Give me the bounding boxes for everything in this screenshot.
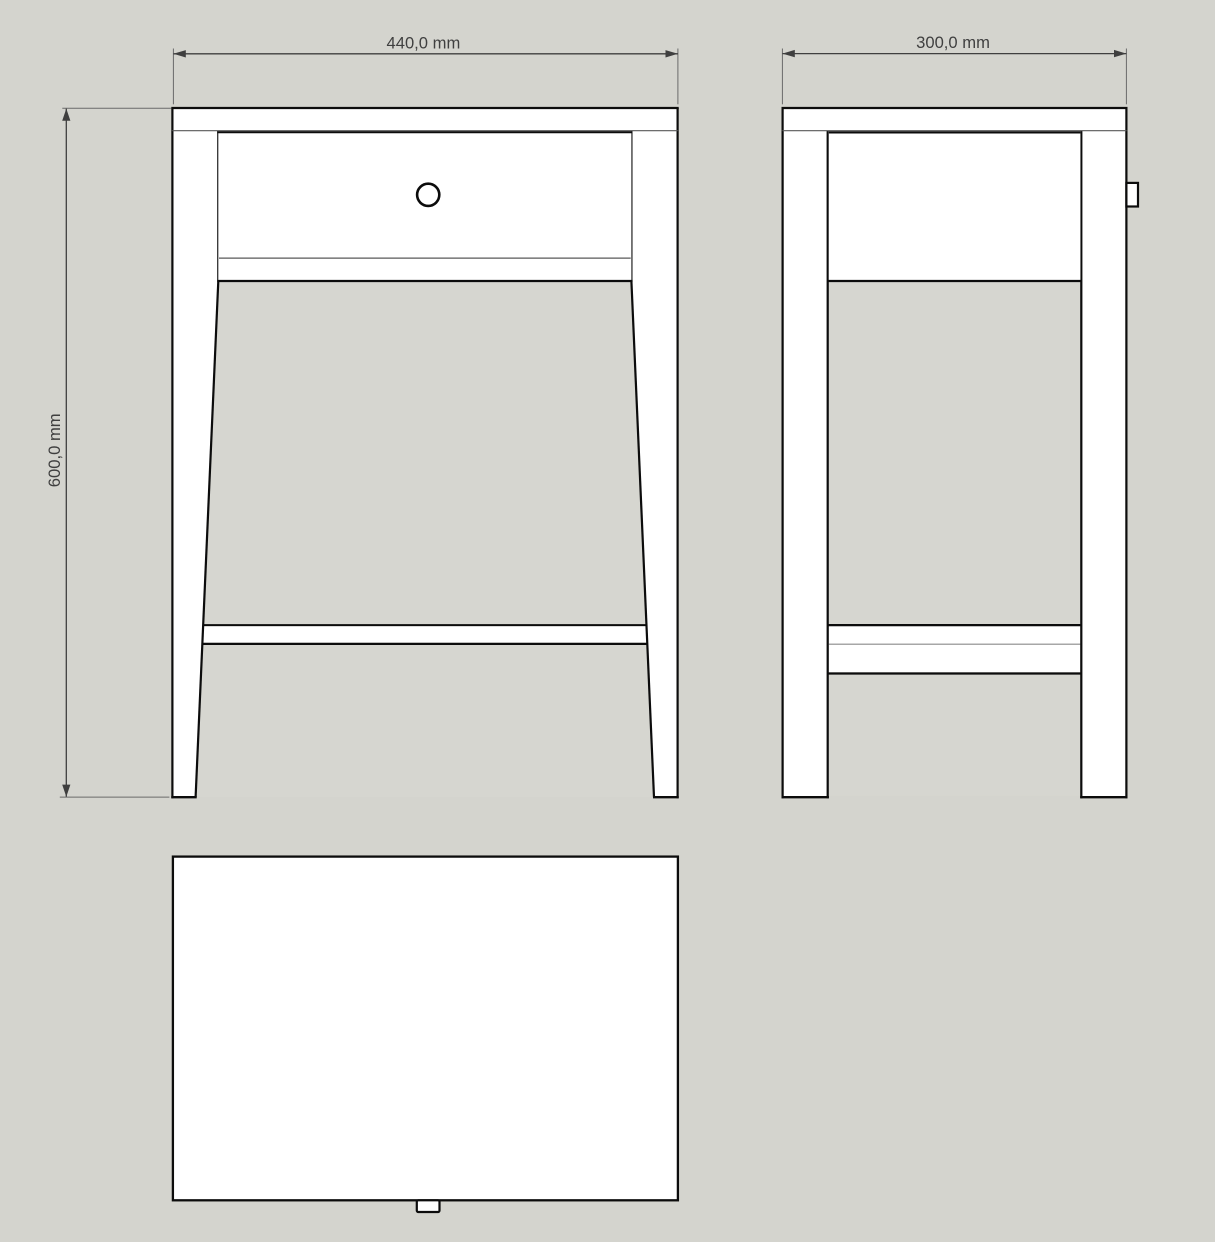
svg-text:440,0 mm: 440,0 mm [387,33,461,52]
svg-text:600,0 mm: 600,0 mm [45,413,64,487]
svg-text:300,0 mm: 300,0 mm [916,33,990,52]
